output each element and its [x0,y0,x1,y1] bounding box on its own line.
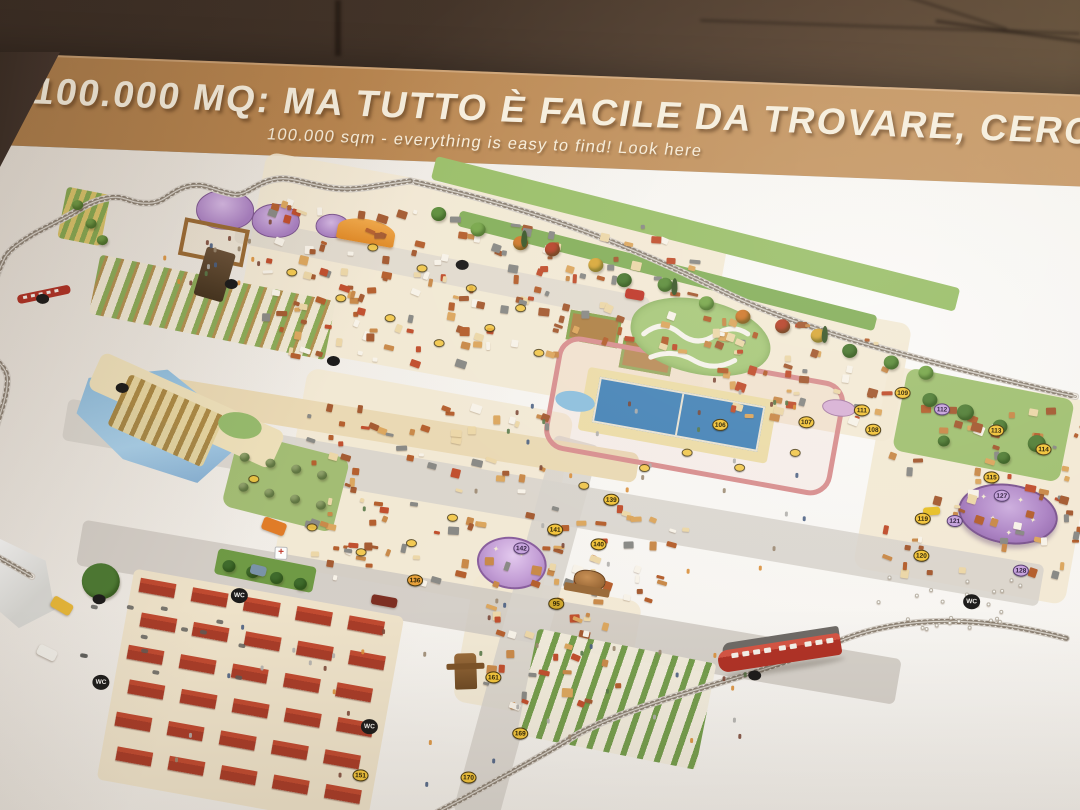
market-stall [631,516,642,522]
crowd-figure [925,626,929,630]
market-stall [339,421,345,426]
market-stall [939,428,948,435]
market-stall [442,276,447,283]
top-rail-line [403,181,1080,397]
tiny-person [770,402,773,407]
market-stall [450,429,461,437]
market-stall [293,331,302,340]
market-stall [500,305,509,314]
market-stall [802,369,808,373]
market-stall [447,311,456,320]
tiny-person [204,271,207,276]
market-stall [502,471,509,476]
avenue-tree [470,222,486,237]
market-stall [449,217,460,223]
market-stall [927,570,933,575]
wall-seam [335,0,341,56]
market-stall [531,565,542,575]
market-stall [1007,474,1011,479]
tiny-person [690,738,693,743]
tiny-person [634,409,637,414]
crowd-figure [915,593,919,597]
market-stall [651,236,662,244]
market-stall [635,575,640,583]
parked-bike [180,627,188,632]
market-stall [435,260,442,265]
tiny-person [268,219,271,224]
tiny-person [612,646,615,651]
wine-press [454,653,477,690]
first-aid-marker: + [274,546,287,559]
market-stall [538,307,550,316]
tiny-person [589,644,592,649]
market-stall [369,328,377,332]
market-stall [717,368,728,373]
tiny-person [487,615,490,620]
market-stall [1009,412,1015,418]
tiny-person [697,410,700,415]
market-stall [507,264,518,274]
market-stall [722,318,726,326]
market-stall [352,467,360,475]
market-stall [327,497,332,505]
market-stall [506,650,514,658]
market-stall [365,563,372,567]
market-stall [547,256,553,259]
tiny-person [227,673,230,678]
market-stall [562,670,572,675]
market-stall [271,289,280,296]
left-loop-line [0,165,410,591]
market-stall [1046,408,1057,416]
market-stall [1072,532,1079,541]
market-stall [311,460,316,465]
tiny-person [228,236,231,241]
market-stall [328,435,333,440]
market-stall [448,527,459,536]
tiny-person [542,419,545,424]
market-stall [1028,408,1038,417]
tiny-person [205,240,208,245]
tiny-person [425,781,428,786]
market-stall [366,333,374,341]
market-stall [607,264,614,270]
parked-bike [200,629,208,634]
market-stall [450,467,461,477]
crowd-figure [967,626,971,630]
tiny-person [772,546,775,551]
market-stall [262,313,271,322]
market-stall [416,346,421,352]
market-stall [913,458,923,462]
market-stall [579,273,585,279]
market-stall [1059,495,1069,505]
market-stall [649,541,656,550]
market-stall [528,296,534,300]
market-stall [713,329,720,338]
market-stall [299,303,307,310]
tiny-person [580,651,583,656]
market-stall [624,542,634,549]
market-stall [595,521,606,526]
market-stall [613,256,618,261]
market-stall [325,324,332,329]
crowd-figure [999,610,1003,614]
photo-scene: 100.000 MQ: MA TUTTO È FACILE DA TROVARE… [0,0,1080,810]
market-stall [364,542,372,550]
market-stall [545,423,549,430]
market-stall [473,342,483,348]
market-stall [974,467,981,476]
market-stall [413,555,420,559]
market-stall [744,413,753,418]
market-stall [298,255,309,265]
market-stall [672,344,677,350]
parked-bike [141,634,149,639]
market-stall [615,683,621,688]
market-stall [499,664,506,672]
market-stall [599,232,609,241]
tiny-person [535,643,538,648]
market-stall [396,445,407,451]
illustrated-park-map: ✦✦✦✦✦ ✦✦✦ [0,143,1080,810]
market-stall [975,479,981,484]
market-stall [1041,537,1047,545]
market-stall [542,546,550,551]
market-stall [581,310,589,318]
market-stall [958,567,966,574]
tiny-person [332,653,335,658]
market-stall [406,328,413,333]
market-stall [310,249,316,254]
market-stall [1013,521,1022,529]
market-stall [476,301,485,309]
market-stall [666,258,675,264]
market-stall [340,268,348,276]
market-stall [468,426,476,434]
market-stall [1001,544,1007,552]
tiny-person [547,719,550,724]
market-stall [326,559,334,567]
market-stall [496,475,505,482]
market-stall [1064,514,1069,522]
market-stall [477,521,486,527]
market-stall [334,546,340,550]
market-stall [630,260,642,271]
market-stall [966,493,977,504]
market-stall [369,520,376,526]
market-stall [785,370,792,377]
market-stall [841,374,849,383]
market-stall [517,489,526,494]
market-stall [513,275,518,284]
tiny-person [333,689,336,694]
market-stall [785,356,791,362]
parked-bike [80,653,88,658]
tiny-person [346,711,349,716]
poster-sheet: ✦✦✦✦✦ ✦✦✦ [0,143,1080,810]
tiny-person [241,625,244,630]
map-poster-board: 100.000 MQ: MA TUTTO È FACILE DA TROVARE… [0,51,1080,810]
tiny-person [189,280,192,285]
market-stall [577,521,587,526]
market-stall [554,579,560,585]
parked-bike [126,605,134,610]
market-stall [794,391,800,394]
market-stall [485,557,494,566]
monorail-track [0,143,1080,810]
market-stall [338,441,343,446]
tiny-person [738,734,741,739]
market-stall [493,416,500,425]
market-stall [932,495,942,506]
tiny-person [423,651,426,656]
tiny-person [625,487,628,492]
market-stall [460,327,470,336]
tiny-person [607,562,610,567]
market-stall [459,296,469,301]
market-stall [448,302,455,311]
market-stall [572,274,577,283]
market-stall [311,552,319,557]
tiny-person [178,279,181,284]
market-stall [582,630,589,637]
crowd-figure [906,617,910,621]
market-stall [414,272,422,277]
market-stall [347,251,353,255]
market-stall [328,512,333,516]
market-stall [501,250,507,256]
tiny-person [507,429,510,434]
market-stall [561,688,572,697]
tiny-person [495,599,498,604]
market-stall [367,287,376,293]
market-stall [518,474,525,482]
tiny-person [793,405,796,410]
tiny-person [361,649,364,654]
tiny-person [561,543,564,548]
tiny-person [189,733,192,738]
market-stall [624,335,634,341]
tiny-person [653,714,656,719]
market-stall [457,231,467,239]
tiny-person [641,475,644,480]
market-stall [554,654,559,661]
market-stall [798,376,809,384]
tiny-person [238,246,241,251]
tiny-person [732,458,735,463]
tiny-person [759,565,762,570]
tiny-person [539,465,542,470]
tiny-person [206,264,209,269]
tiny-person [785,511,788,516]
market-stall [374,232,385,238]
avenue-tree [735,309,751,324]
market-stall [690,259,701,264]
market-stall [864,338,869,341]
market-stall [511,339,519,347]
parked-bike [140,648,148,653]
crowd-figure [949,616,953,620]
market-stall [382,256,390,265]
market-stall [904,545,911,551]
tiny-person [802,516,805,521]
market-stall [902,562,907,570]
market-stall [276,311,287,316]
tiny-person [675,672,678,677]
market-stall [900,569,909,579]
tiny-person [516,704,519,709]
market-stall [486,342,490,350]
crowd-figure [1009,578,1013,582]
market-stall [350,486,357,493]
tiny-person [723,488,726,493]
market-stall [874,408,882,415]
